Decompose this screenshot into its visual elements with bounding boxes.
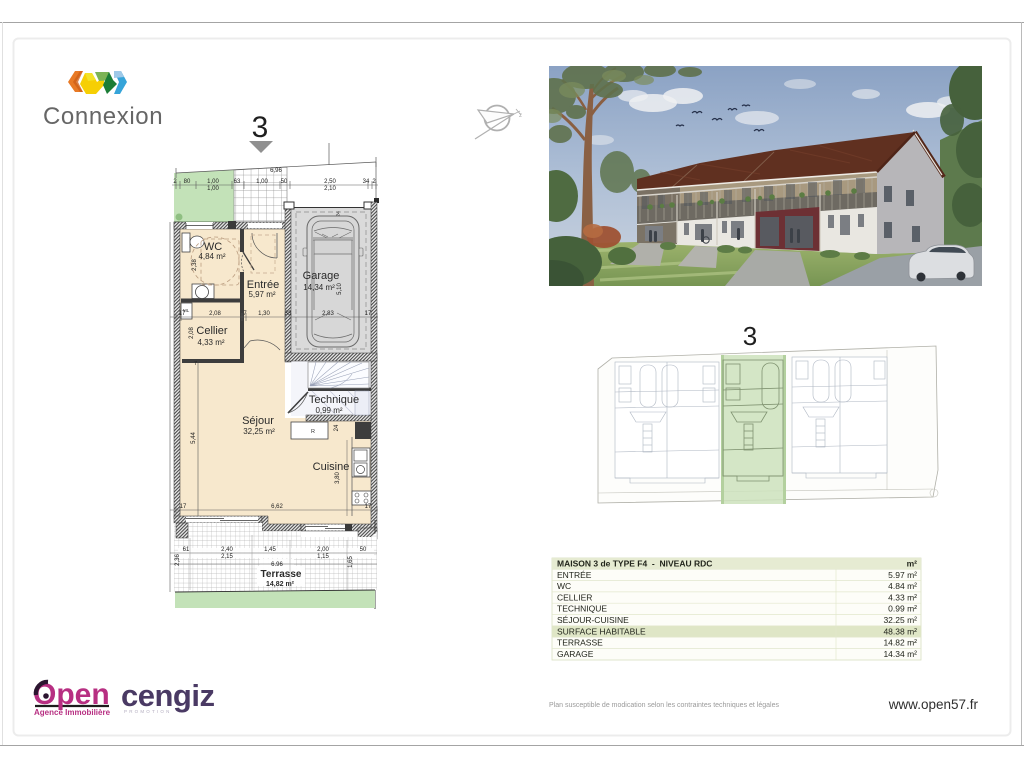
svg-text:cengiz: cengiz bbox=[121, 678, 214, 713]
svg-text:32.25 m²: 32.25 m² bbox=[883, 615, 917, 625]
svg-text:R: R bbox=[311, 429, 315, 435]
svg-text:50: 50 bbox=[360, 547, 367, 553]
svg-text:Cellier: Cellier bbox=[196, 325, 228, 337]
svg-text:2,08: 2,08 bbox=[209, 311, 221, 317]
svg-text:14.82 m²: 14.82 m² bbox=[883, 638, 917, 648]
svg-text:17: 17 bbox=[179, 311, 186, 317]
svg-text:32,25 m²: 32,25 m² bbox=[243, 427, 275, 436]
svg-text:34: 34 bbox=[363, 179, 370, 185]
svg-text:TERRASSE: TERRASSE bbox=[557, 638, 603, 648]
svg-text:CELLIER: CELLIER bbox=[557, 592, 592, 602]
svg-text:24: 24 bbox=[334, 424, 340, 431]
svg-text:1,15: 1,15 bbox=[317, 554, 329, 560]
svg-text:4,33 m²: 4,33 m² bbox=[197, 338, 224, 347]
svg-text:17: 17 bbox=[365, 504, 372, 510]
svg-text:17: 17 bbox=[365, 311, 372, 317]
svg-text:1,00: 1,00 bbox=[207, 179, 219, 185]
svg-text:2,36: 2,36 bbox=[175, 554, 181, 566]
svg-text:14,34 m²: 14,34 m² bbox=[303, 283, 335, 292]
svg-text:2,08: 2,08 bbox=[189, 327, 195, 339]
svg-text:SURFACE HABITABLE: SURFACE HABITABLE bbox=[557, 626, 646, 636]
svg-text:2,10: 2,10 bbox=[324, 186, 336, 192]
svg-text:3,80: 3,80 bbox=[335, 472, 341, 484]
svg-text:Agence Immobilière: Agence Immobilière bbox=[34, 708, 111, 717]
svg-text:4.33 m²: 4.33 m² bbox=[888, 592, 917, 602]
svg-text:Technique: Technique bbox=[309, 394, 359, 406]
svg-text:5,44: 5,44 bbox=[191, 432, 197, 444]
svg-text:5,97 m²: 5,97 m² bbox=[248, 290, 275, 299]
svg-text:2,00: 2,00 bbox=[317, 547, 329, 553]
svg-text:ENTRÉE: ENTRÉE bbox=[557, 570, 592, 580]
svg-text:1,30: 1,30 bbox=[258, 311, 270, 317]
svg-text:80: 80 bbox=[184, 179, 191, 185]
svg-text:3: 3 bbox=[743, 321, 757, 351]
svg-text:2,83: 2,83 bbox=[322, 311, 334, 317]
svg-text:1,00: 1,00 bbox=[207, 186, 219, 192]
svg-text:14.34 m²: 14.34 m² bbox=[883, 649, 917, 659]
svg-text:2,50: 2,50 bbox=[324, 179, 336, 185]
svg-text:www.open57.fr: www.open57.fr bbox=[888, 697, 979, 712]
svg-text:2,38: 2,38 bbox=[192, 259, 198, 271]
svg-text:GARAGE: GARAGE bbox=[557, 649, 594, 659]
svg-text:5.97 m²: 5.97 m² bbox=[888, 570, 917, 580]
svg-text:7: 7 bbox=[194, 361, 197, 367]
svg-text:14,82 m²: 14,82 m² bbox=[266, 581, 295, 588]
svg-text:50: 50 bbox=[281, 179, 288, 185]
svg-text:2,40: 2,40 bbox=[221, 547, 233, 553]
svg-text:Plan susceptible de modication: Plan susceptible de modication selon les… bbox=[549, 702, 779, 709]
svg-text:TECHNIQUE: TECHNIQUE bbox=[557, 604, 607, 614]
svg-text:6,96: 6,96 bbox=[270, 168, 282, 174]
svg-text:17: 17 bbox=[180, 504, 187, 510]
svg-text:1,00: 1,00 bbox=[256, 179, 268, 185]
svg-text:2,15: 2,15 bbox=[221, 554, 233, 560]
svg-text:4,84 m²: 4,84 m² bbox=[198, 252, 225, 261]
svg-text:63: 63 bbox=[234, 179, 241, 185]
svg-text:3: 3 bbox=[252, 111, 269, 144]
svg-text:0.99 m²: 0.99 m² bbox=[888, 604, 917, 614]
svg-text:0,99 m²: 0,99 m² bbox=[315, 406, 342, 415]
svg-text:Cuisine: Cuisine bbox=[313, 461, 350, 473]
svg-text:48.38 m²: 48.38 m² bbox=[883, 626, 917, 636]
svg-text:1,65: 1,65 bbox=[348, 556, 354, 568]
svg-text:Garage: Garage bbox=[303, 270, 340, 282]
svg-text:MAISON 3 de TYPE F4 - NIVEAU: MAISON 3 de TYPE F4 - NIVEAU RDC bbox=[557, 559, 712, 569]
svg-text:z: z bbox=[519, 113, 522, 119]
svg-text:Séjour: Séjour bbox=[242, 415, 274, 427]
svg-text:WC: WC bbox=[557, 581, 571, 591]
svg-text:Connexion: Connexion bbox=[43, 103, 163, 130]
svg-text:m²: m² bbox=[907, 559, 918, 569]
svg-text:Terrasse: Terrasse bbox=[261, 569, 302, 580]
svg-text:4.84 m²: 4.84 m² bbox=[888, 581, 917, 591]
svg-text:33: 33 bbox=[285, 311, 292, 317]
svg-text:5,10: 5,10 bbox=[337, 283, 343, 295]
svg-text:6,62: 6,62 bbox=[271, 504, 283, 510]
svg-text:SÉJOUR-CUISINE: SÉJOUR-CUISINE bbox=[557, 615, 629, 625]
svg-text:PROMOTION: PROMOTION bbox=[124, 709, 172, 714]
svg-text:1,45: 1,45 bbox=[264, 547, 276, 553]
svg-text:61: 61 bbox=[183, 547, 190, 553]
